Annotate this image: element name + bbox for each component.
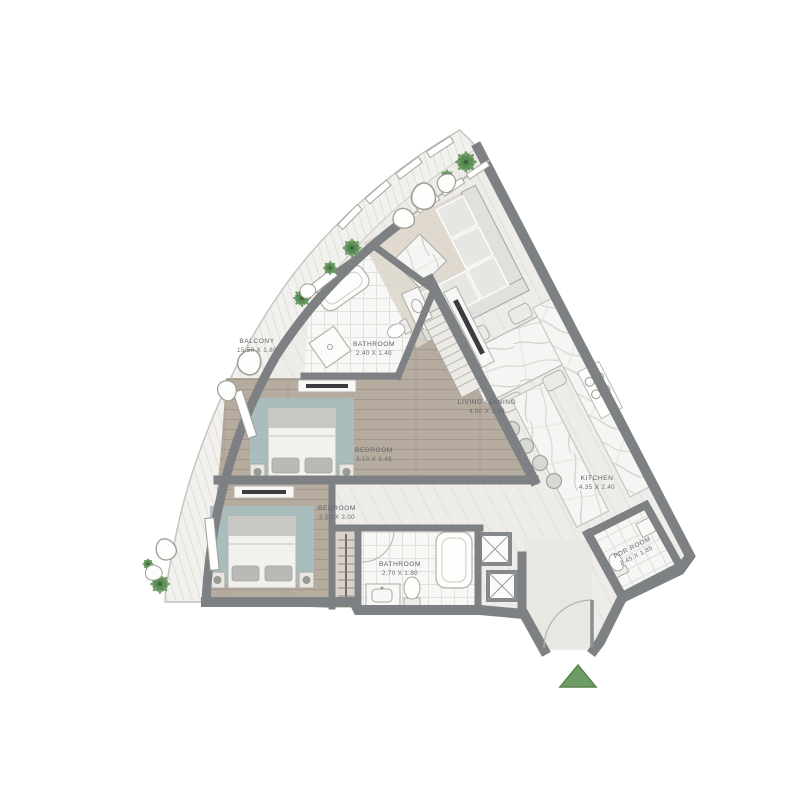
tv-console-bedroom-2	[234, 486, 294, 498]
vanity-2	[366, 584, 400, 606]
entry-direction-triangle-icon	[560, 665, 596, 687]
svg-text:BALCONY: BALCONY	[239, 338, 274, 345]
svg-text:LIVING / DINING: LIVING / DINING	[458, 399, 516, 406]
bathtub-2	[436, 532, 472, 588]
svg-text:2.70 X 1.80: 2.70 X 1.80	[382, 570, 418, 577]
svg-text:2.40 X 1.40: 2.40 X 1.40	[356, 350, 392, 357]
bed-2	[228, 516, 296, 588]
floor-plan-page: BALCONY 15.50 X 1.80 BATHROOM 2.40 X 1.4…	[0, 0, 800, 800]
palm-icon	[343, 239, 362, 258]
svg-text:3.50 X 3.00: 3.50 X 3.00	[319, 514, 355, 521]
svg-text:BEDROOM: BEDROOM	[355, 447, 393, 454]
svg-text:15.50 X 1.80: 15.50 X 1.80	[237, 347, 277, 354]
svg-text:KITCHEN: KITCHEN	[581, 475, 614, 482]
palm-icon	[323, 261, 337, 275]
svg-text:4.80 X 3.98: 4.80 X 3.98	[469, 408, 505, 415]
bed-1	[268, 408, 336, 480]
palm-icon	[455, 151, 477, 173]
bedroom-2-furniture	[210, 506, 314, 588]
tv-console-bedroom-1	[298, 380, 356, 392]
svg-text:BATHROOM: BATHROOM	[379, 561, 421, 568]
svg-text:BATHROOM: BATHROOM	[353, 341, 395, 348]
toilet-2	[404, 577, 420, 606]
svg-text:3.10 X 3.48: 3.10 X 3.48	[356, 456, 392, 463]
svg-text:BEDROOM: BEDROOM	[318, 505, 356, 512]
floor-plan-canvas: BALCONY 15.50 X 1.80 BATHROOM 2.40 X 1.4…	[0, 0, 800, 800]
bedroom-1-furniture	[250, 398, 354, 480]
svg-text:4.35 X 2.40: 4.35 X 2.40	[579, 484, 615, 491]
